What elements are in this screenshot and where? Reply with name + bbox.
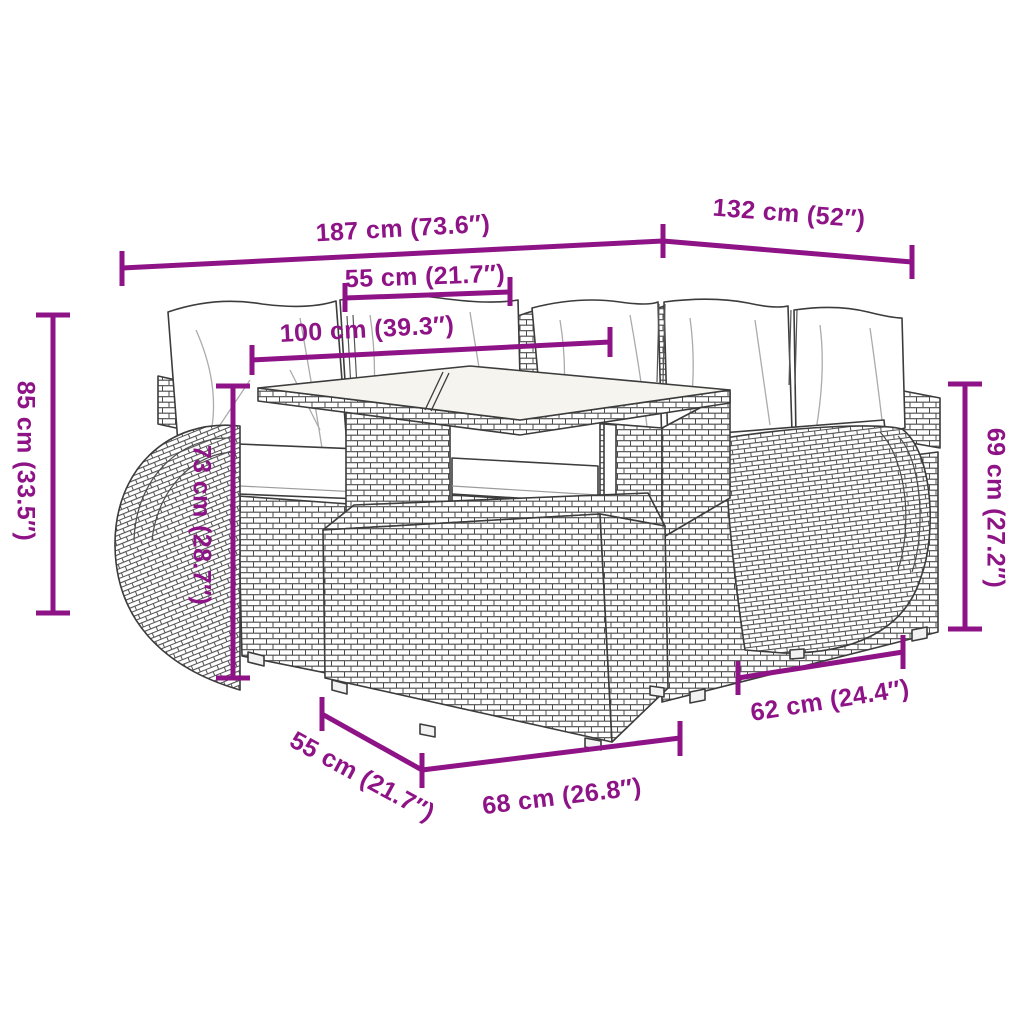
dim-right-width-line <box>663 241 912 279</box>
dimension-label-overall-height: 85 cm (33.5″) <box>11 381 40 541</box>
footstool-side <box>600 514 668 742</box>
dim-overall-height-line <box>36 315 70 613</box>
dimension-label-table-height: 73 cm (28.7″) <box>187 445 216 605</box>
furniture-line-art <box>0 0 1024 1024</box>
pillow <box>794 307 905 438</box>
footstool-front <box>323 514 612 742</box>
footstool <box>323 493 668 742</box>
dimension-label-armrest-height: 69 cm (27.2″) <box>981 428 1010 588</box>
dim-armrest-height-line <box>948 384 982 629</box>
dimension-label-table-top-width: 55 cm (21.7″) <box>344 260 505 295</box>
rattan-lounge-set-drawing <box>115 295 940 750</box>
armrest-left <box>115 425 240 690</box>
product-dimension-diagram: 187 cm (73.6″) 132 cm (52″) 55 cm (21.7″… <box>0 0 1024 1024</box>
